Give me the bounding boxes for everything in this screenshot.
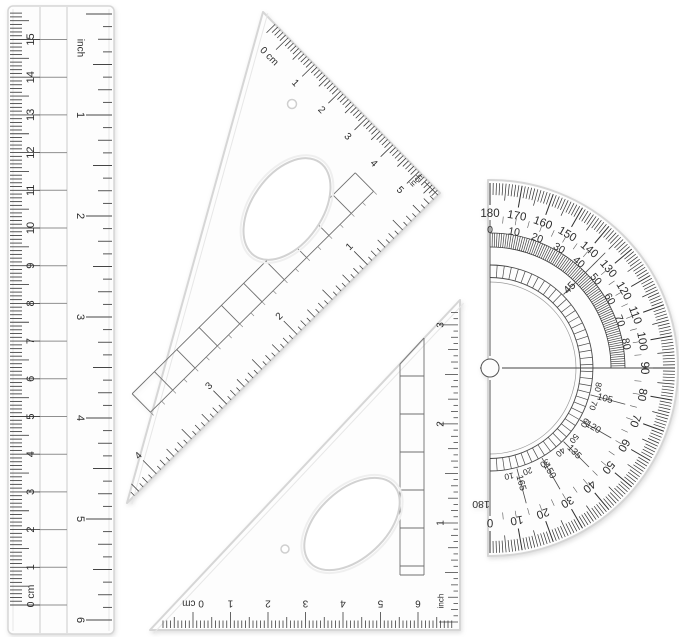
diagonal-degree-label: 180 bbox=[472, 498, 490, 510]
ruler-body bbox=[8, 6, 114, 634]
cm-number: 10 bbox=[25, 222, 37, 234]
inner-degree-label: 80 bbox=[619, 337, 633, 351]
cm-number: 3 bbox=[25, 489, 37, 495]
inch-number: 3 bbox=[436, 322, 447, 328]
inch-unit-label: inch bbox=[437, 594, 446, 609]
cm-number: 6 bbox=[415, 598, 421, 609]
cm-number: 14 bbox=[25, 71, 37, 83]
cm-zero-label: 0 cm bbox=[25, 584, 37, 607]
cm-number: 3 bbox=[302, 598, 308, 609]
cm-number: 1 bbox=[227, 598, 233, 609]
cm-number: 12 bbox=[25, 146, 37, 158]
outer-degree-label: 180 bbox=[480, 208, 499, 220]
inch-number: 1 bbox=[436, 520, 447, 526]
inch-number: 2 bbox=[74, 213, 86, 219]
cm-number: 6 bbox=[25, 376, 37, 382]
outer-degree-label: 10 bbox=[509, 513, 524, 527]
cm-number: 9 bbox=[25, 263, 37, 269]
center-notch bbox=[481, 359, 499, 377]
cm-number: 5 bbox=[377, 598, 383, 609]
cm-number: 7 bbox=[25, 338, 37, 344]
geometry-set-product-photo: 0 cm123456789101112131415inch123456 0 cm… bbox=[0, 0, 679, 637]
cm-number: 11 bbox=[25, 185, 37, 196]
inch-unit-label: inch bbox=[75, 39, 86, 57]
fine-degree-label: 10 bbox=[503, 471, 514, 483]
ruler: 0 cm123456789101112131415inch123456 bbox=[8, 6, 114, 634]
inch-number: 2 bbox=[436, 421, 447, 427]
cm-number: 4 bbox=[25, 451, 37, 457]
cm-number: 2 bbox=[265, 598, 271, 609]
cm-number: 1 bbox=[25, 564, 37, 570]
hang-hole bbox=[288, 100, 297, 109]
band-divider bbox=[132, 394, 150, 412]
inch-number: 3 bbox=[74, 314, 86, 320]
cm-number: 4 bbox=[340, 598, 346, 609]
inch-number: 4 bbox=[74, 415, 86, 421]
cm-number: 15 bbox=[25, 33, 37, 45]
protractor: 1801701601501401301201101009080706050403… bbox=[472, 180, 678, 556]
cm-number: 8 bbox=[25, 300, 37, 306]
cm-zero-label: 0 cm bbox=[182, 598, 204, 609]
cm-number: 5 bbox=[25, 413, 37, 419]
inner-degree-label: 10 bbox=[507, 225, 521, 239]
cm-number: 13 bbox=[25, 109, 37, 121]
geometry-set-canvas: 0 cm123456789101112131415inch123456 0 cm… bbox=[0, 0, 679, 637]
inch-number: 1 bbox=[74, 112, 86, 118]
outer-degree-label: 80 bbox=[635, 387, 649, 402]
outer-degree-label: 0 bbox=[487, 516, 493, 528]
cm-number: 2 bbox=[25, 527, 37, 533]
inch-number: 6 bbox=[74, 617, 86, 623]
hang-hole bbox=[281, 545, 289, 553]
inch-number: 5 bbox=[74, 516, 86, 522]
